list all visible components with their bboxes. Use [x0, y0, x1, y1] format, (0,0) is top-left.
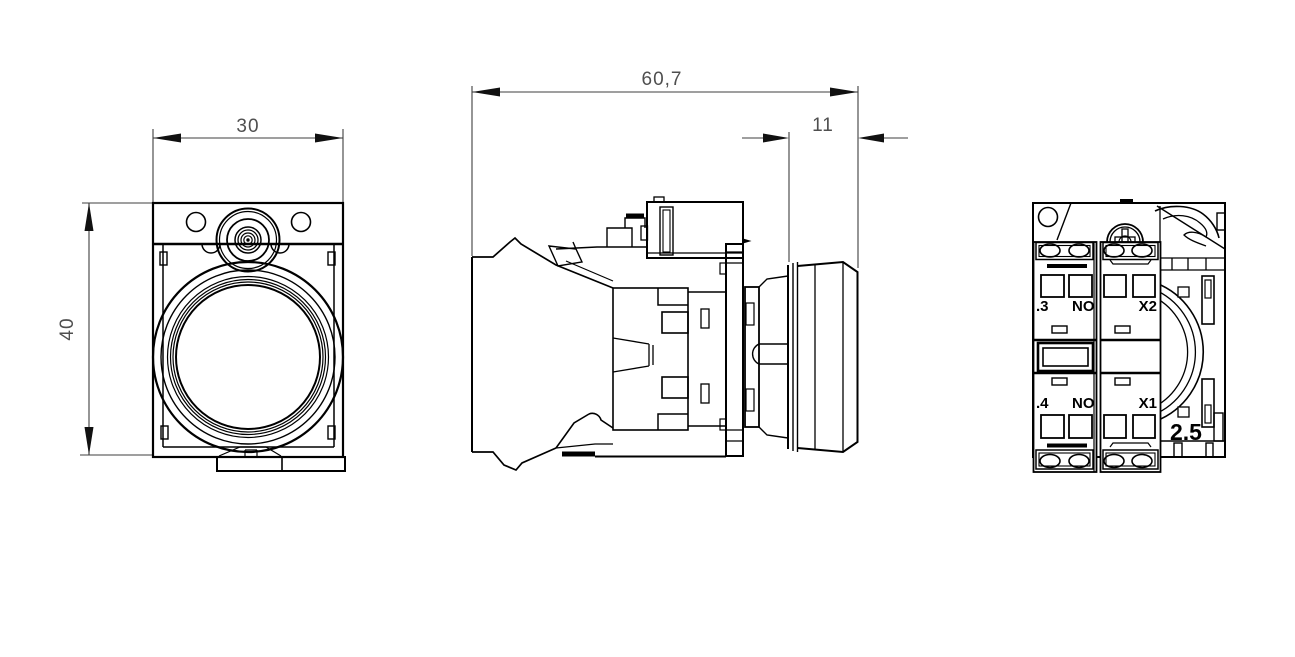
- mounting-hole-left: [187, 213, 206, 232]
- pushbutton-dimension-drawing: 30 40: [0, 0, 1295, 657]
- button-face: [153, 262, 343, 452]
- side-view: 60,7 11: [472, 69, 908, 470]
- dimension-arrow-left: [153, 134, 181, 143]
- rear-view: .3 NO .4 NO X2 X1: [1033, 199, 1225, 472]
- no-contact-label-top: NO: [1072, 298, 1095, 315]
- top-module-side: [647, 197, 752, 258]
- front-plate-side: [720, 244, 743, 456]
- contact-block-side: [472, 214, 648, 471]
- terminal-3-label: .3: [1036, 298, 1049, 315]
- contact-module-1: .3 NO .4 NO: [1034, 242, 1097, 472]
- bottom-tab: [217, 457, 345, 471]
- dim-height-label: 40: [57, 317, 78, 340]
- anti-rotation-lug: [1107, 199, 1143, 242]
- dimension-cap-depth: 11: [742, 115, 908, 262]
- wire-gauge-label: 2.5: [1170, 419, 1202, 445]
- lamp-module-2: X2 X1: [1101, 242, 1161, 472]
- dimension-drawing-canvas: 30 40: [0, 0, 1295, 657]
- terminal-4-label: .4: [1036, 395, 1049, 412]
- mounting-ring-arc: [1156, 283, 1203, 421]
- dimension-height: 40: [57, 203, 153, 455]
- center-module-side: [595, 288, 726, 457]
- button-cap-side: [788, 262, 858, 452]
- dimension-total-depth: 60,7: [472, 69, 858, 268]
- mounting-hole-right: [292, 213, 311, 232]
- dimension-arrow-right: [315, 134, 343, 143]
- x2-terminal-label: X2: [1139, 298, 1157, 315]
- dim-width-label: 30: [236, 116, 259, 137]
- mounting-collar-side: [745, 276, 788, 438]
- front-view: 30 40: [57, 116, 345, 471]
- dimension-arrow-up: [85, 203, 94, 231]
- dimension-width: 30: [153, 116, 343, 207]
- no-contact-label-bottom: NO: [1072, 395, 1095, 412]
- dim-cap-depth-label: 11: [812, 115, 834, 136]
- dim-total-depth-label: 60,7: [642, 69, 683, 90]
- dimension-arrow-down: [85, 427, 94, 455]
- x1-terminal-label: X1: [1139, 395, 1157, 412]
- pushbutton-front-body: [153, 203, 345, 471]
- screw-hole: [1039, 208, 1058, 227]
